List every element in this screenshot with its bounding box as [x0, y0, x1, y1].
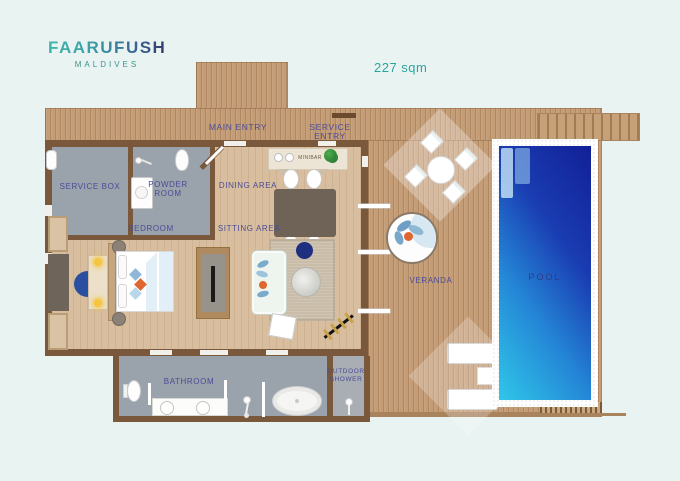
- window-left-1: [45, 205, 52, 216]
- sliding-door-panel-1: [358, 204, 390, 208]
- outdoor-shower-arm: [348, 405, 350, 415]
- dining-area-label: DINING AREA: [212, 181, 284, 190]
- minibar-sink-1: [274, 153, 283, 162]
- vanity-sink: [160, 401, 174, 415]
- entry-walkway-deck: [196, 62, 288, 112]
- wing-wall-bottom: [113, 416, 370, 422]
- wall-outdoor-shower-divider: [327, 356, 333, 416]
- area-size-label: 227 sqm: [374, 60, 454, 75]
- veranda-edge-extension: [598, 413, 626, 416]
- bedside-stool: [112, 312, 126, 326]
- bathroom-partition: [262, 382, 265, 417]
- pool-step-1: [501, 148, 513, 198]
- wing-wall-left: [113, 356, 119, 422]
- floor-plan-canvas: FAARUFUSHI MALDIVES 227 sqm MINI: [0, 0, 680, 481]
- tv-screen: [211, 266, 215, 302]
- main-entry-opening: [224, 141, 246, 146]
- sitting-area-label: SITTING AREA: [213, 224, 285, 233]
- service-box-label: SERVICE BOX: [54, 182, 126, 191]
- powder-toilet: [175, 149, 189, 171]
- service-entry-label: SERVICE ENTRY: [294, 123, 366, 141]
- sliding-door-panel-3: [358, 309, 390, 313]
- vanity-sink: [196, 401, 210, 415]
- sun-lounger: [447, 343, 498, 364]
- outdoor-table: [427, 156, 455, 184]
- veranda-label: VERANDA: [399, 276, 463, 285]
- headboard: [108, 243, 116, 321]
- pool-label: POOL: [499, 272, 591, 282]
- brand-subtitle: MALDIVES: [48, 60, 166, 69]
- sofa: [252, 251, 286, 314]
- minibar-plant: [324, 149, 337, 162]
- bathroom-toilet: [127, 380, 141, 402]
- window-bedroom-bottom-2: [200, 350, 228, 355]
- minibar-label: MINIBAR: [296, 154, 324, 163]
- sun-lounger: [447, 389, 498, 410]
- window-bedroom-bottom-3: [266, 350, 288, 355]
- window-right-upper: [362, 156, 368, 167]
- ottoman: [296, 242, 313, 259]
- dining-chair: [283, 169, 299, 189]
- daybed: [386, 212, 438, 264]
- side-table: [268, 313, 297, 340]
- powder-room-label: POWDER ROOM: [146, 180, 190, 198]
- sliding-door-panel-2: [358, 250, 390, 254]
- bathroom-partition: [224, 380, 227, 400]
- jetty-steps: [537, 113, 640, 141]
- bedroom-label: BEDROOM: [119, 224, 183, 233]
- service-box-fixture: [46, 150, 57, 170]
- sofa-pillow-orange: [259, 281, 267, 289]
- wall-under-powder: [45, 235, 215, 240]
- bedside-lamp: [94, 299, 102, 307]
- bedside-lamp: [94, 258, 102, 266]
- bed-pillow: [118, 255, 127, 279]
- bathroom-partition: [148, 383, 151, 405]
- shower-base: [244, 413, 249, 418]
- service-entry-opening: [318, 141, 336, 146]
- wardrobe-top: [48, 216, 68, 252]
- dresser-panel: [48, 254, 69, 311]
- bathtub-drain: [295, 399, 299, 403]
- daybed-pillow-orange: [404, 232, 413, 241]
- wardrobe-bottom: [48, 313, 68, 350]
- bathroom-label: BATHROOM: [157, 377, 221, 386]
- bed-pillow: [118, 284, 127, 308]
- main-entry-label: MAIN ENTRY: [203, 123, 273, 132]
- dining-chair: [306, 169, 322, 189]
- bed-duvet-fold: [157, 252, 159, 311]
- brand-logo: FAARUFUSHI: [48, 38, 166, 58]
- wing-wall-right: [364, 356, 370, 422]
- minibar-sink-2: [285, 153, 294, 162]
- coffee-table: [291, 267, 321, 297]
- outdoor-shower-label: OUTDOOR SHOWER: [324, 368, 368, 384]
- window-bedroom-bottom-1: [150, 350, 172, 355]
- entry-bench: [332, 113, 356, 118]
- pool-step-2: [515, 148, 530, 184]
